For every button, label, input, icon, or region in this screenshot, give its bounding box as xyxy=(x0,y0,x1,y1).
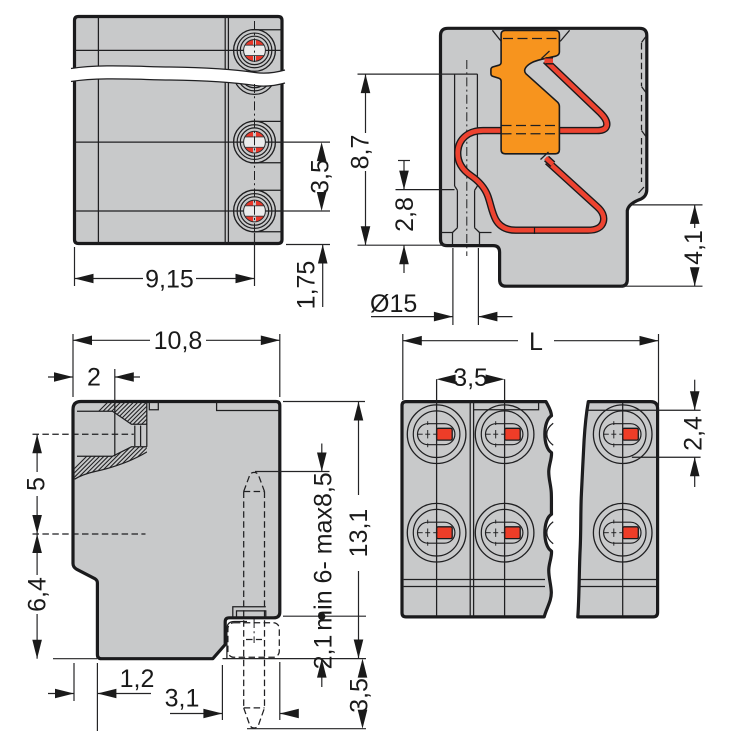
svg-text:2: 2 xyxy=(87,364,101,392)
svg-text:3,5: 3,5 xyxy=(306,159,334,194)
svg-text:8,7: 8,7 xyxy=(347,135,375,170)
svg-text:9,15: 9,15 xyxy=(145,266,194,294)
svg-text:3,5: 3,5 xyxy=(346,678,374,713)
svg-text:Ø15: Ø15 xyxy=(370,290,417,318)
svg-text:L: L xyxy=(529,328,543,356)
svg-text:2,1: 2,1 xyxy=(309,635,337,670)
svg-text:5: 5 xyxy=(23,477,51,491)
svg-text:1,75: 1,75 xyxy=(293,261,321,310)
svg-text:min 6- max8,5: min 6- max8,5 xyxy=(309,472,337,630)
svg-text:10,8: 10,8 xyxy=(154,327,203,355)
svg-text:2,4: 2,4 xyxy=(680,416,708,451)
svg-text:4,1: 4,1 xyxy=(680,230,708,265)
svg-text:13,1: 13,1 xyxy=(345,509,373,558)
svg-text:1,2: 1,2 xyxy=(120,665,155,693)
svg-text:2,8: 2,8 xyxy=(391,197,419,232)
svg-text:3,5: 3,5 xyxy=(453,364,488,392)
svg-text:6,4: 6,4 xyxy=(24,577,52,612)
svg-text:3,1: 3,1 xyxy=(165,685,200,713)
